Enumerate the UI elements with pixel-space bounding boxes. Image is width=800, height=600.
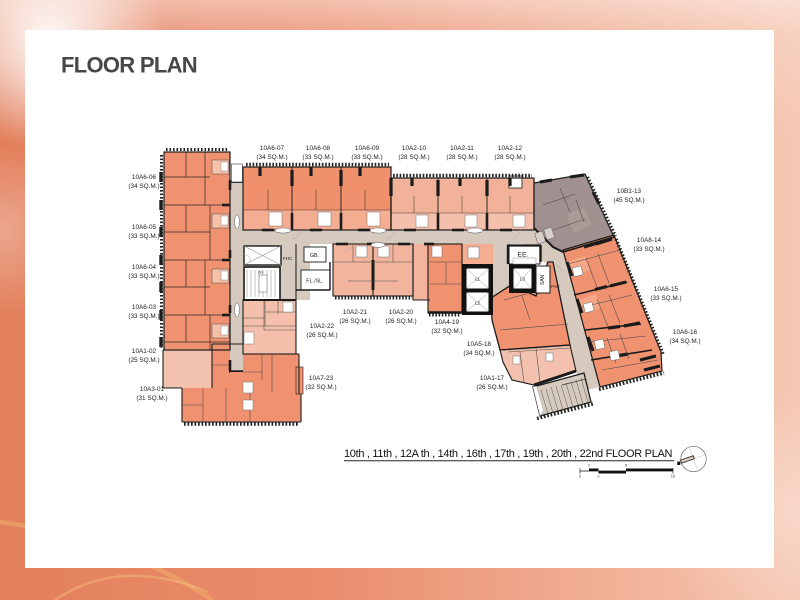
svg-text:(45 SQ.M.): (45 SQ.M.): [613, 197, 644, 204]
svg-text:10B1-13: 10B1-13: [617, 188, 642, 195]
svg-text:(33 SQ.M.): (33 SQ.M.): [128, 273, 159, 280]
svg-text:DN: DN: [258, 271, 263, 275]
svg-text:(34 SQ.M.): (34 SQ.M.): [256, 154, 287, 161]
svg-text:(34 SQ.M.): (34 SQ.M.): [128, 183, 159, 190]
svg-text:10A1-02: 10A1-02: [132, 348, 157, 355]
svg-text:FHC: FHC: [283, 256, 293, 261]
svg-text:(26 SQ.M.): (26 SQ.M.): [476, 384, 507, 391]
svg-text:EE.: EE.: [518, 252, 529, 259]
svg-text:(33 SQ.M.): (33 SQ.M.): [633, 246, 664, 253]
svg-text:(26 SQ.M.): (26 SQ.M.): [385, 318, 416, 325]
svg-text:L3: L3: [520, 277, 526, 282]
svg-text:SAN: SAN: [540, 274, 546, 285]
svg-text:10A6-06: 10A6-06: [132, 174, 157, 181]
svg-text:10A6-09: 10A6-09: [355, 145, 380, 152]
svg-text:FHC: FHC: [551, 284, 560, 289]
svg-text:10A6-03: 10A6-03: [132, 304, 157, 311]
svg-text:(34 SQ.M.): (34 SQ.M.): [669, 338, 700, 345]
svg-text:(31 SQ.M.): (31 SQ.M.): [136, 395, 167, 402]
svg-text:10th , 11th , 12A th , 14th ,: 10th , 11th , 12A th , 14th , 16th , 17t…: [344, 448, 673, 460]
svg-text:10A8-14: 10A8-14: [637, 237, 662, 244]
svg-text:(33 SQ.M.): (33 SQ.M.): [128, 233, 159, 240]
svg-text:L1: L1: [475, 277, 481, 282]
svg-text:10A2-10: 10A2-10: [402, 145, 427, 152]
svg-text:(32 SQ.M.): (32 SQ.M.): [431, 328, 462, 335]
svg-text:10A7-23: 10A7-23: [309, 375, 334, 382]
svg-text:(28 SQ.M.): (28 SQ.M.): [446, 154, 477, 161]
svg-text:(26 SQ.M.): (26 SQ.M.): [306, 332, 337, 339]
svg-text:(26 SQ.M.): (26 SQ.M.): [339, 318, 370, 325]
svg-text:10A2-11: 10A2-11: [450, 145, 474, 152]
svg-text:10A6-07: 10A6-07: [260, 145, 285, 152]
svg-text:10A1-17: 10A1-17: [480, 375, 505, 382]
svg-text:10: 10: [671, 474, 676, 479]
svg-text:(32 SQ.M.): (32 SQ.M.): [305, 384, 336, 391]
svg-text:FLOOR PLAN: FLOOR PLAN: [61, 53, 197, 78]
svg-text:10A6-16: 10A6-16: [673, 329, 698, 336]
svg-text:(25 SQ.M.): (25 SQ.M.): [128, 357, 159, 364]
svg-text:(33 SQ.M.): (33 SQ.M.): [351, 154, 382, 161]
svg-text:10A2-21: 10A2-21: [343, 309, 368, 316]
svg-text:(33 SQ.M.): (33 SQ.M.): [650, 295, 681, 302]
svg-text:FL./SL.: FL./SL.: [306, 279, 323, 285]
svg-text:10A6-15: 10A6-15: [654, 286, 679, 293]
svg-text:10A2-12: 10A2-12: [498, 145, 523, 152]
svg-text:L2: L2: [475, 301, 481, 306]
svg-text:10A3-01: 10A3-01: [140, 386, 165, 393]
svg-text:10A4-19: 10A4-19: [435, 319, 460, 326]
svg-text:10A2-20: 10A2-20: [389, 309, 414, 316]
svg-text:(33 SQ.M.): (33 SQ.M.): [128, 313, 159, 320]
svg-text:10A6-04: 10A6-04: [132, 264, 157, 271]
svg-text:GB.: GB.: [310, 253, 319, 259]
svg-text:10A6-05: 10A6-05: [132, 224, 157, 231]
svg-text:10A5-18: 10A5-18: [467, 341, 492, 348]
svg-text:10A6-08: 10A6-08: [306, 145, 331, 152]
svg-text:10A2-22: 10A2-22: [310, 323, 335, 330]
svg-text:(28 SQ.M.): (28 SQ.M.): [494, 154, 525, 161]
svg-text:(33 SQ.M.): (33 SQ.M.): [302, 154, 333, 161]
svg-text:(28 SQ.M.): (28 SQ.M.): [398, 154, 429, 161]
svg-text:(34 SQ.M.): (34 SQ.M.): [463, 350, 494, 357]
